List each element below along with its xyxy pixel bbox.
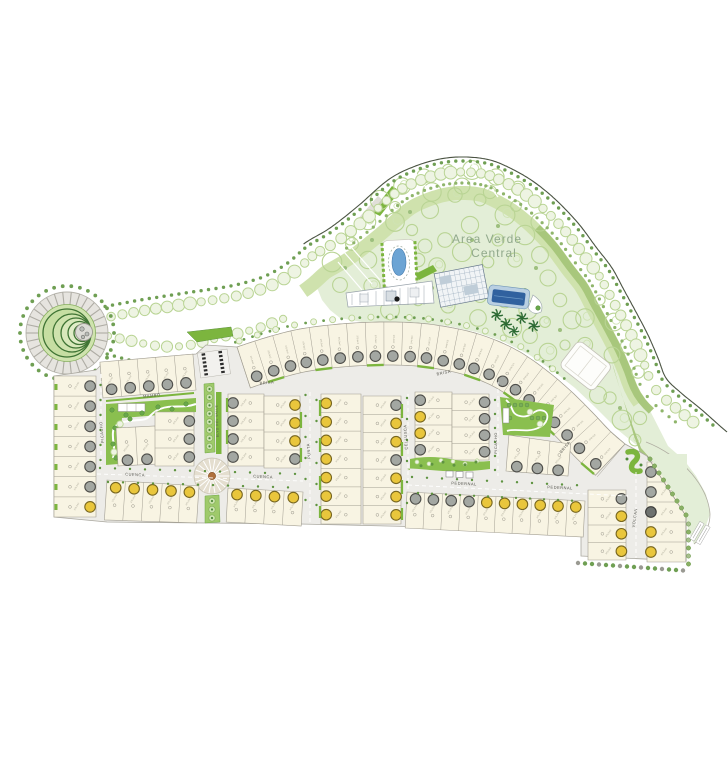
svg-text:CUENCA: CUENCA <box>253 473 273 479</box>
svg-text:Central: Central <box>471 246 517 260</box>
svg-text:CUENCA: CUENCA <box>125 471 145 477</box>
svg-text:PICACHO: PICACHO <box>493 432 498 454</box>
svg-text:375.9m2: 375.9m2 <box>374 335 376 344</box>
svg-text:Area Verde: Area Verde <box>452 232 522 246</box>
svg-text:375.9m2: 375.9m2 <box>392 335 394 344</box>
